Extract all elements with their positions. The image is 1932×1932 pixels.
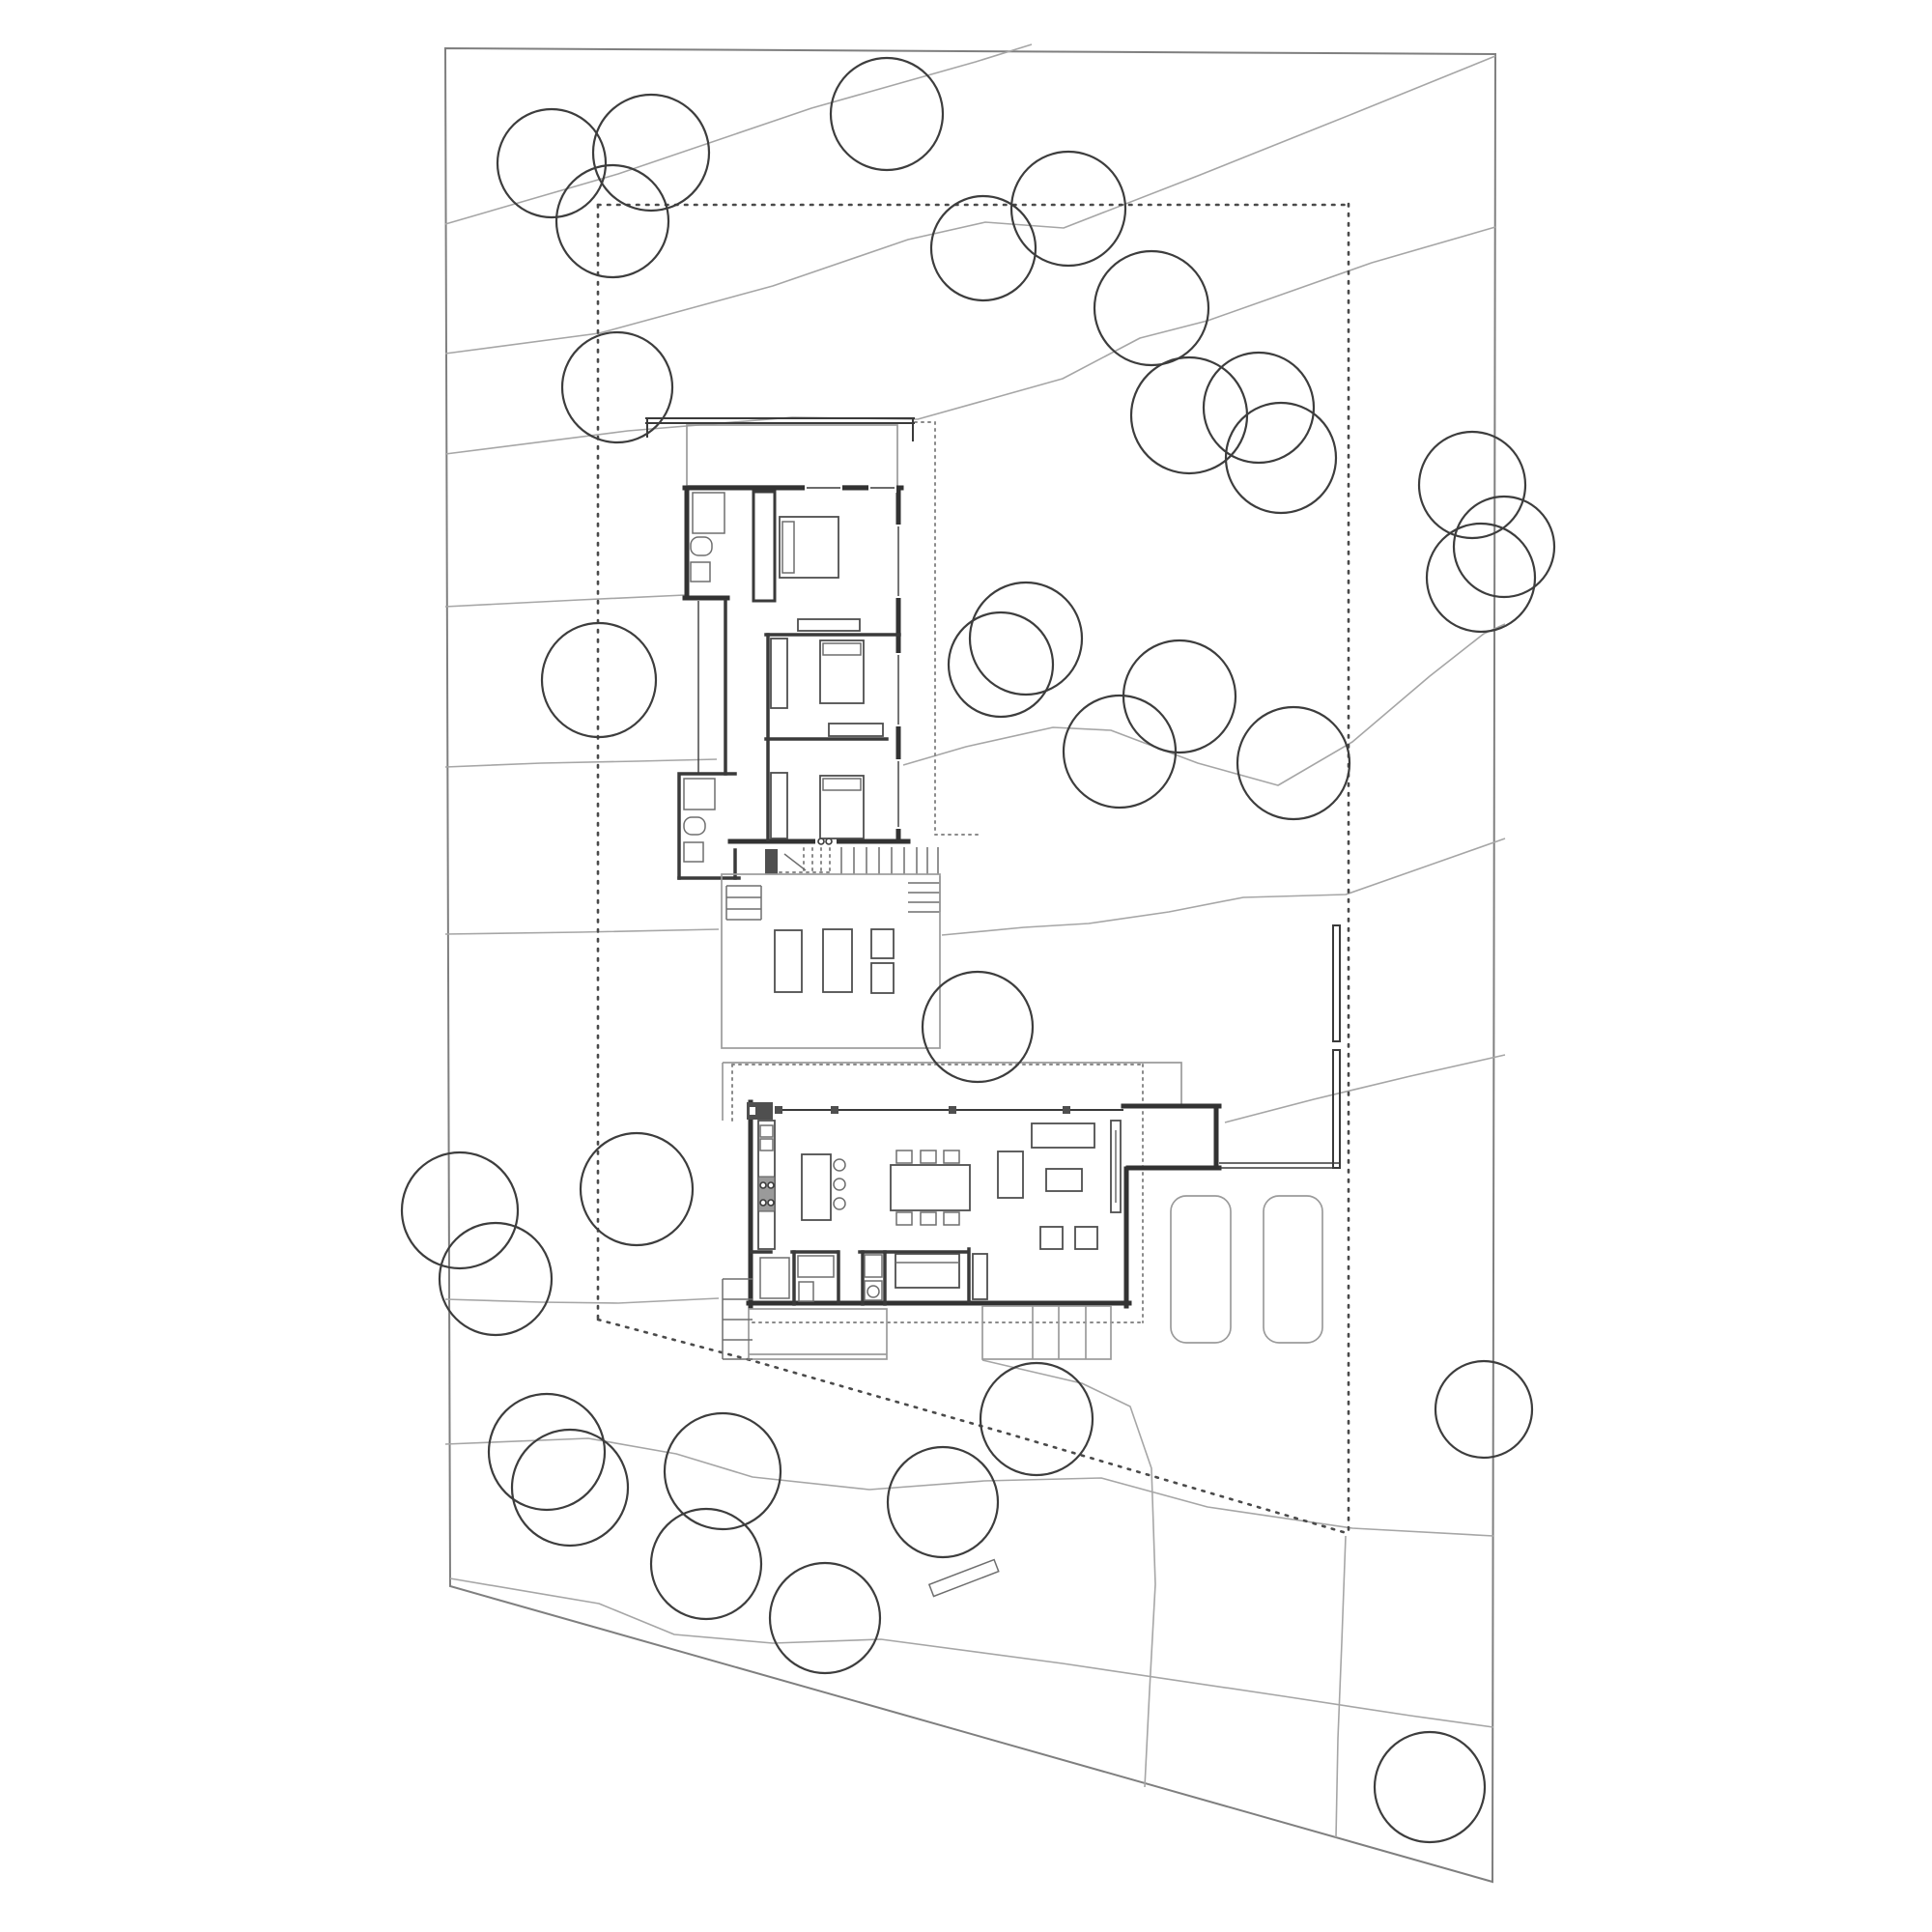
cooktop — [758, 1177, 775, 1211]
column — [1063, 1106, 1070, 1114]
drawing-canvas — [0, 0, 1932, 1932]
background — [0, 0, 1932, 1932]
column — [949, 1106, 956, 1114]
fireplace-opening — [750, 1107, 755, 1115]
closet — [753, 492, 775, 601]
column — [831, 1106, 838, 1114]
door-pivot — [826, 838, 832, 844]
stair-pier — [765, 849, 778, 874]
burner — [768, 1182, 774, 1188]
site-plan — [0, 0, 1932, 1932]
door-pivot — [818, 838, 824, 844]
column — [775, 1106, 782, 1114]
burner — [768, 1200, 774, 1206]
burner — [760, 1182, 766, 1188]
burner — [760, 1200, 766, 1206]
